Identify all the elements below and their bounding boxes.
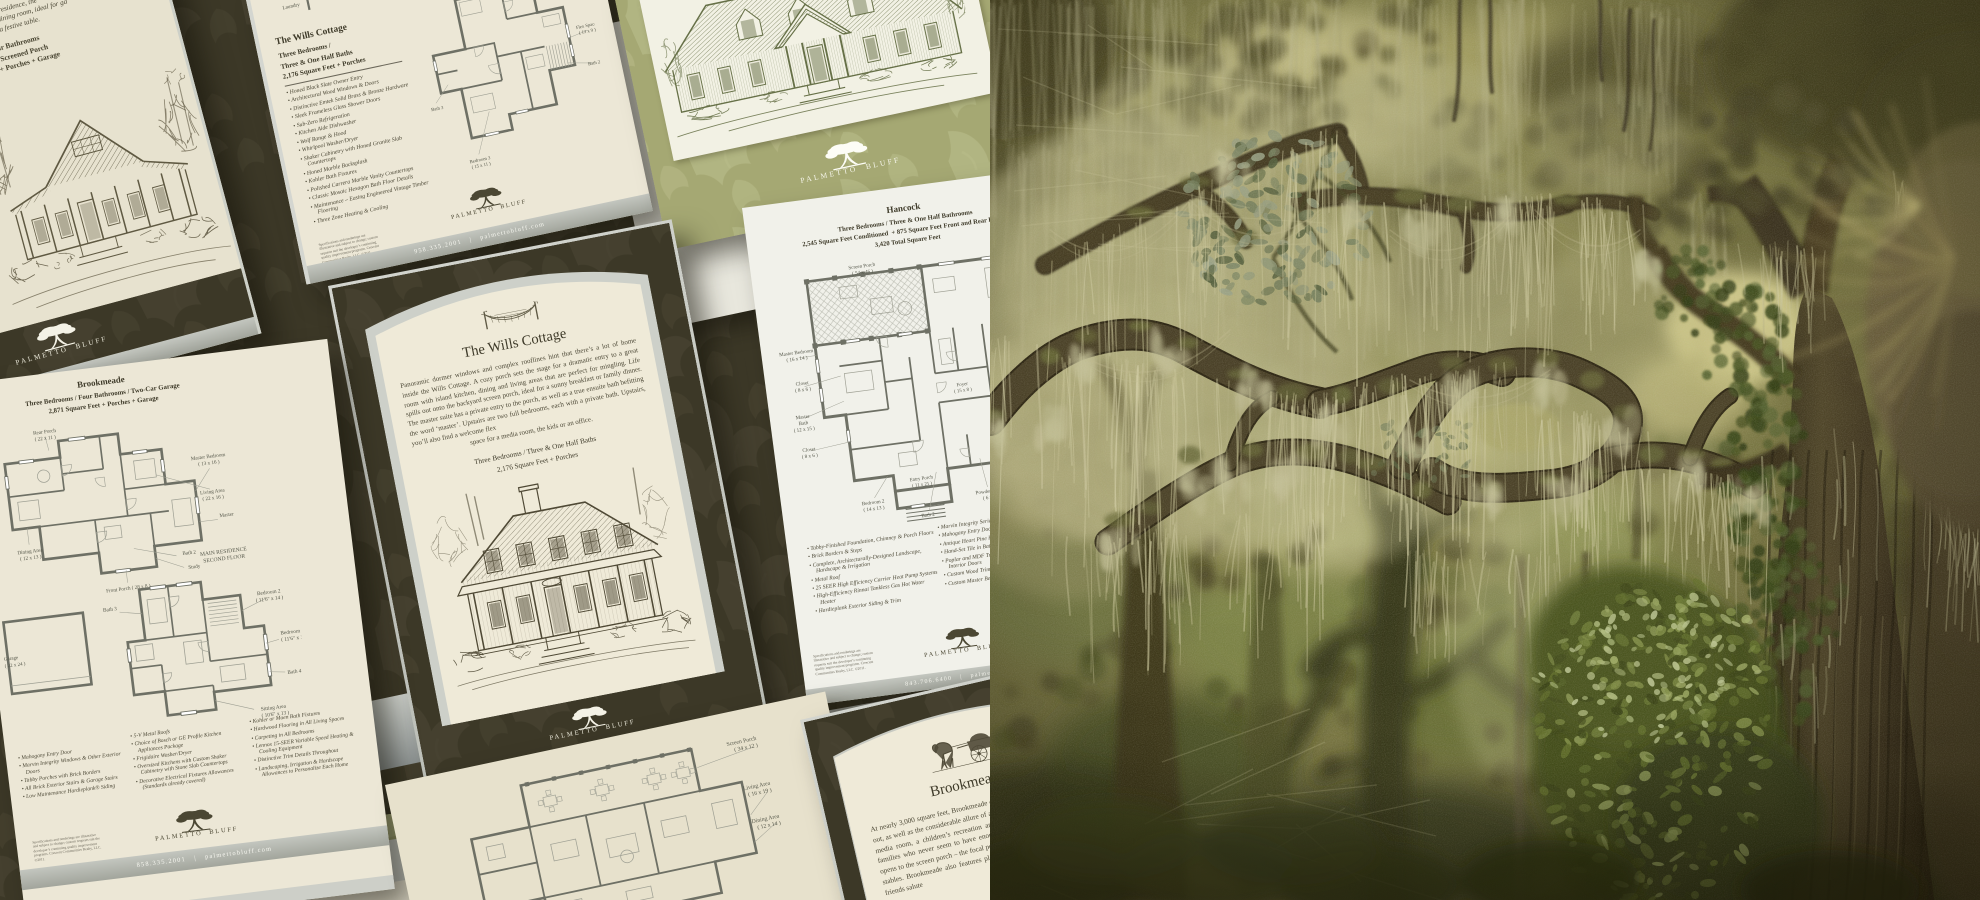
svg-text:( 12 x 15 ): ( 12 x 15 ) xyxy=(793,425,815,435)
svg-text:Bath 2: Bath 2 xyxy=(588,60,602,68)
svg-text:Bath 3: Bath 3 xyxy=(431,106,445,114)
svg-text:( 22 x 24 ): ( 22 x 24 ) xyxy=(5,662,27,670)
svg-text:Bath 3: Bath 3 xyxy=(103,606,118,614)
svg-text:Garage: Garage xyxy=(4,656,20,663)
svg-text:( 15 x 8 ): ( 15 x 8 ) xyxy=(954,387,973,394)
svg-text:Bath 4: Bath 4 xyxy=(287,668,302,676)
svg-text:Master Bath: Master Bath xyxy=(219,510,242,519)
